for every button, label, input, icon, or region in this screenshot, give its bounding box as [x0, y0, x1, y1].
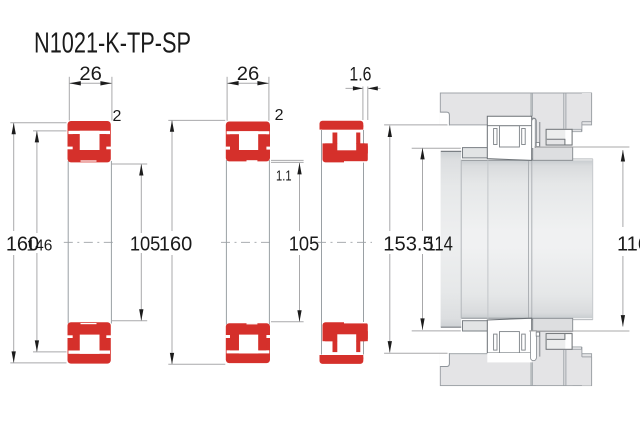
- svg-text:160: 160: [159, 234, 192, 256]
- svg-text:114: 114: [426, 233, 453, 255]
- svg-text:26: 26: [237, 64, 260, 85]
- svg-text:26: 26: [79, 64, 102, 85]
- svg-text:1.1: 1.1: [276, 167, 292, 184]
- svg-text:2: 2: [113, 108, 122, 125]
- svg-text:N1021-K-TP-SP: N1021-K-TP-SP: [34, 28, 191, 60]
- svg-text:2: 2: [275, 107, 284, 124]
- svg-text:116: 116: [617, 233, 640, 255]
- svg-text:105: 105: [289, 234, 320, 256]
- svg-text:105: 105: [130, 234, 161, 256]
- svg-text:146: 146: [26, 237, 52, 254]
- svg-text:1.6: 1.6: [349, 65, 371, 86]
